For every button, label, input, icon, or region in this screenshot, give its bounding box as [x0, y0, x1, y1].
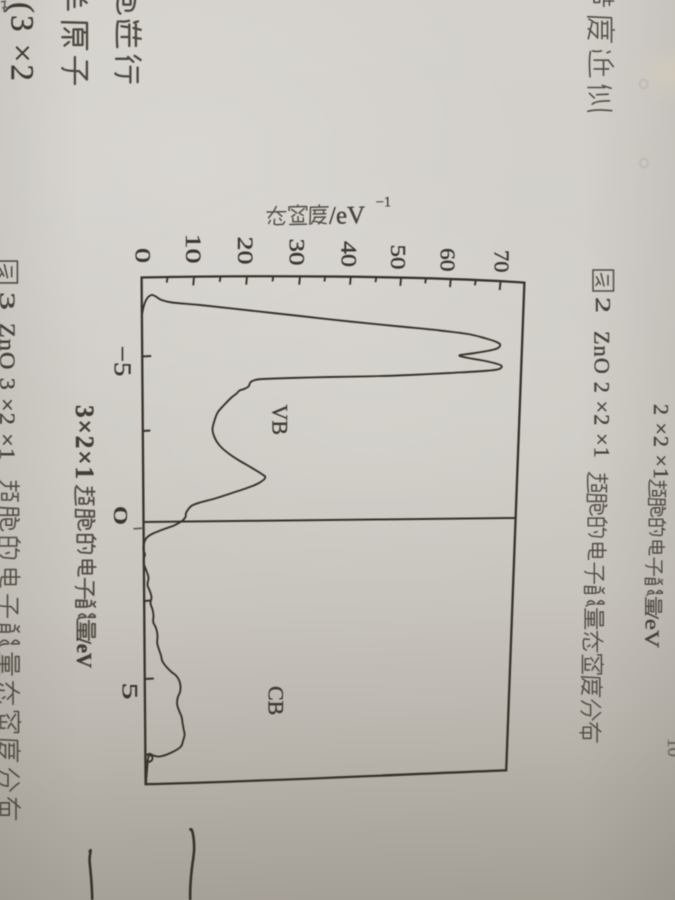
- svg-text:40: 40: [337, 241, 362, 267]
- svg-text:2: 2: [591, 297, 615, 313]
- svg-text:(3 ×2: (3 ×2: [4, 2, 40, 83]
- svg-text:70: 70: [489, 250, 513, 273]
- svg-text:5: 5: [118, 683, 143, 700]
- svg-text:ZnO 3 ×2 ×1: ZnO 3 ×2 ×1: [0, 323, 20, 461]
- svg-text:30: 30: [285, 239, 310, 266]
- svg-text:10: 10: [181, 234, 206, 264]
- svg-text:/eV: /eV: [72, 637, 96, 668]
- svg-text:−1: −1: [376, 194, 392, 210]
- svg-text:3×2×1: 3×2×1: [70, 405, 99, 481]
- svg-text:2 ×2 ×1: 2 ×2 ×1: [649, 404, 673, 480]
- svg-text:−5: −5: [109, 346, 135, 377]
- svg-text:0: 0: [131, 248, 156, 263]
- svg-text:0: 0: [109, 506, 131, 525]
- svg-text:60: 60: [436, 248, 460, 272]
- svg-text:CB: CB: [264, 686, 289, 715]
- svg-text:/eV: /eV: [329, 202, 366, 230]
- svg-text:20: 20: [233, 237, 258, 265]
- svg-text:VB: VB: [268, 405, 293, 436]
- svg-text:10: 10: [663, 738, 675, 757]
- svg-text:ZnO 2 ×2 ×1: ZnO 2 ×2 ×1: [590, 331, 615, 459]
- svg-text:3: 3: [0, 292, 20, 310]
- svg-text:50: 50: [386, 245, 410, 270]
- svg-text:/eV: /eV: [640, 612, 662, 649]
